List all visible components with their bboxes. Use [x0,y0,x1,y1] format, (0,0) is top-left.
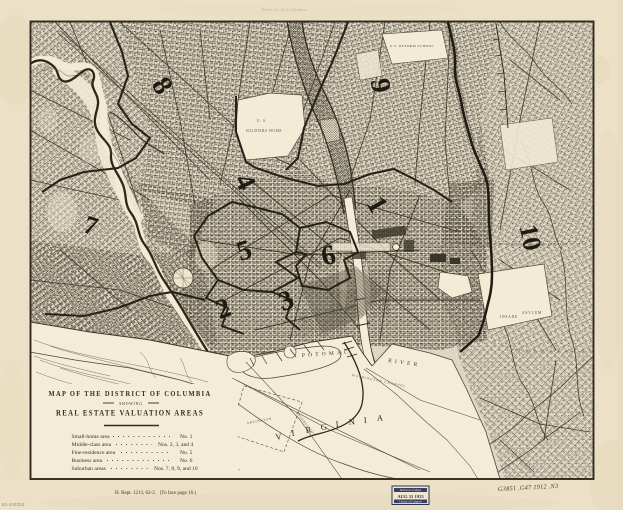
svg-text:U. S.: U. S. [257,119,267,123]
svg-text:62-434352: 62-434352 [2,502,25,507]
svg-text:INSANE: INSANE [500,315,518,319]
svg-text:No. 5: No. 5 [180,450,193,456]
svg-text:Middle-class area: Middle-class area [72,442,112,448]
svg-text:POTOMAC PARK: POTOMAC PARK [288,333,331,337]
svg-text:Business area: Business area [72,458,103,464]
svg-text:Fine-residence area: Fine-residence area [72,450,116,456]
svg-text:No. 6: No. 6 [180,458,193,464]
svg-text:Nos. 7, 8, 9, and 10: Nos. 7, 8, 9, and 10 [154,466,198,472]
svg-text:G: G [320,421,327,432]
svg-text:District of Columbia: District of Columbia [261,7,307,12]
svg-text:ASYLUM: ASYLUM [522,311,542,315]
svg-text:Suburban areas: Suburban areas [72,466,106,472]
svg-text:Nos. 2, 3, and 4: Nos. 2, 3, and 4 [158,442,193,448]
svg-text:H. Rept. 1213, 62-2. (To fac: H. Rept. 1213, 62-2. (To face page 16.) [115,491,196,496]
svg-text:U.S. REFORM SCHOOL: U.S. REFORM SCHOOL [390,44,434,48]
svg-text:Library of Congress: Library of Congress [399,500,422,503]
svg-text:MAP OF THE DISTRICT OF COLUMBI: MAP OF THE DISTRICT OF COLUMBIA [49,389,212,398]
svg-text:REAL ESTATE VALUATION AREAS: REAL ESTATE VALUATION AREAS [56,409,204,418]
svg-text:No. 1: No. 1 [180,434,193,440]
svg-text:Division of Maps: Division of Maps [400,488,422,492]
svg-text:SOLDIERS HOME: SOLDIERS HOME [246,129,283,133]
svg-text:SHOWING: SHOWING [119,402,143,406]
svg-text:AUG 31 1933: AUG 31 1933 [397,494,424,499]
svg-text:Small-home area: Small-home area [72,434,111,440]
